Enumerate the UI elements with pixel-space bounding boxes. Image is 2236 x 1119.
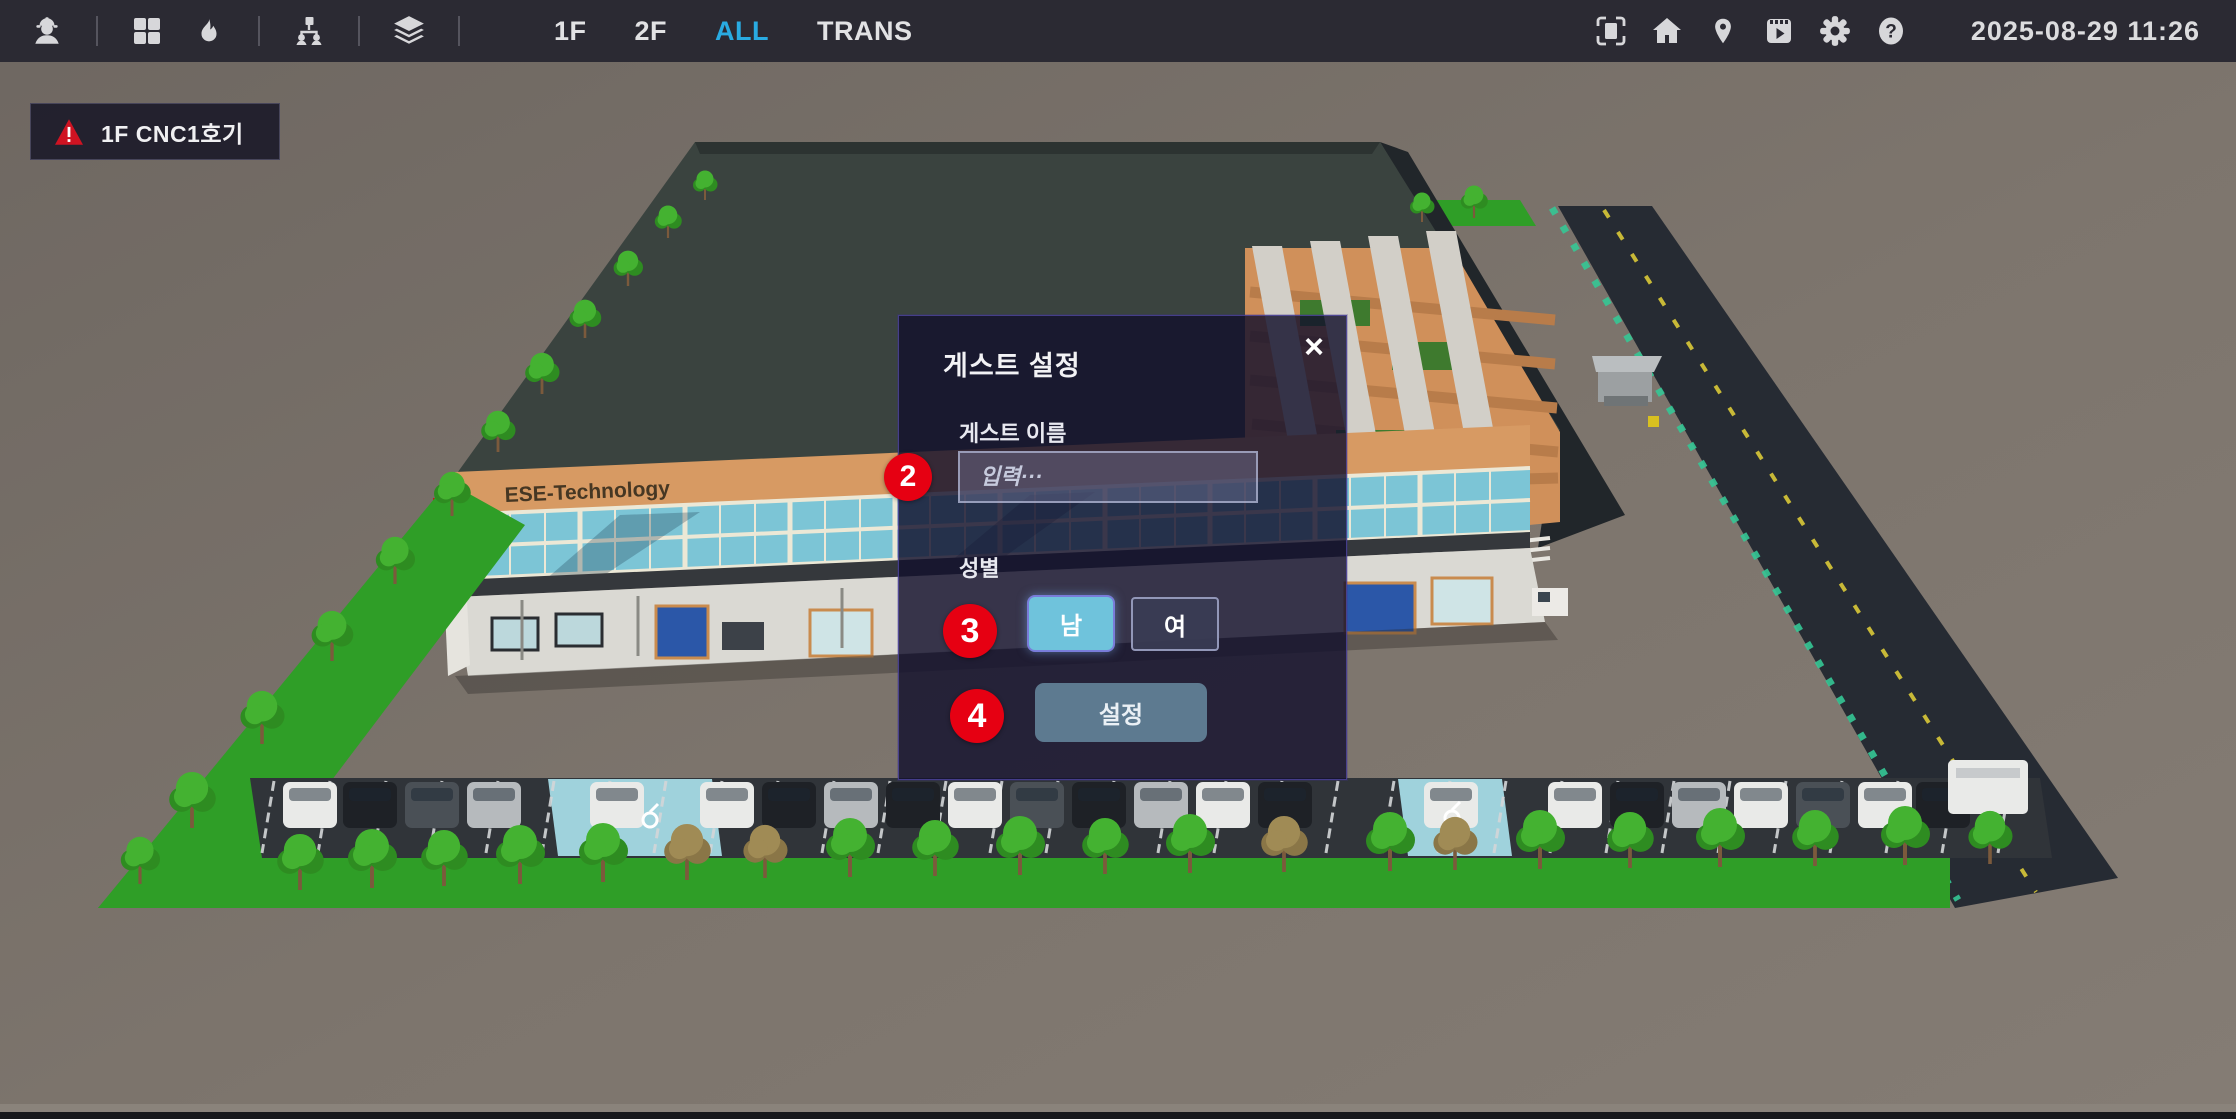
parked-car — [590, 782, 644, 828]
gear-icon[interactable] — [1812, 8, 1858, 54]
step-marker-3: 3 — [943, 604, 997, 658]
parked-car — [700, 782, 754, 828]
alarm-label: 1F CNC1호기 — [101, 115, 244, 149]
gender-female-button[interactable]: 여 — [1131, 597, 1219, 651]
close-icon[interactable]: × — [1304, 330, 1324, 364]
video-icon[interactable] — [1756, 8, 1802, 54]
floor-button-all[interactable]: ALL — [691, 16, 793, 47]
parked-car — [467, 782, 521, 828]
home-icon[interactable] — [1644, 8, 1690, 54]
gender-male-button[interactable]: 남 — [1027, 595, 1115, 652]
toolbar-right-group: ? 2025-08-29 11:26 — [1583, 8, 2236, 54]
alarm-badge[interactable]: 1F CNC1호기 — [30, 103, 280, 160]
svg-text:?: ? — [1885, 22, 1897, 43]
layers-icon[interactable] — [386, 8, 432, 54]
box-truck — [1948, 760, 2028, 814]
step-marker-4: 4 — [950, 689, 1004, 743]
parked-car — [1734, 782, 1788, 828]
fullscreen-icon[interactable] — [1588, 8, 1634, 54]
help-icon[interactable]: ? — [1868, 8, 1914, 54]
gender-label: 성별 — [959, 551, 999, 583]
parked-car — [283, 782, 337, 828]
app-root: ESE-Technology — [0, 0, 2236, 1119]
parked-car — [343, 782, 397, 828]
toolbar-separator — [358, 16, 360, 46]
map-pin-icon[interactable] — [1700, 8, 1746, 54]
floor-selector: 1F 2F ALL TRANS — [530, 16, 937, 47]
flame-icon[interactable] — [186, 8, 232, 54]
floor-button-trans[interactable]: TRANS — [793, 16, 937, 47]
road-sign — [1648, 416, 1659, 427]
step-marker-2: 2 — [884, 453, 932, 501]
parked-car — [1196, 782, 1250, 828]
toolbar-separator — [258, 16, 260, 46]
submit-button[interactable]: 설정 — [1035, 683, 1207, 742]
grid-icon[interactable] — [124, 8, 170, 54]
parked-car — [762, 782, 816, 828]
floor-button-1f[interactable]: 1F — [530, 16, 611, 47]
guest-name-input[interactable] — [958, 451, 1258, 503]
floor-button-2f[interactable]: 2F — [611, 16, 692, 47]
org-chart-icon[interactable] — [286, 8, 332, 54]
guest-name-label: 게스트 이름 — [959, 416, 1066, 448]
guest-helmet-icon[interactable] — [24, 8, 70, 54]
dialog-title: 게스트 설정 — [943, 344, 1081, 383]
datetime-display: 2025-08-29 11:26 — [1971, 16, 2200, 47]
toolbar-separator — [96, 16, 98, 46]
parked-car — [948, 782, 1002, 828]
parked-car — [1548, 782, 1602, 828]
toolbar-separator — [458, 16, 460, 46]
warning-triangle-icon — [53, 118, 85, 146]
parked-car — [405, 782, 459, 828]
toolbar-left-group — [16, 8, 478, 54]
top-toolbar: 1F 2F ALL TRANS — [0, 0, 2236, 62]
